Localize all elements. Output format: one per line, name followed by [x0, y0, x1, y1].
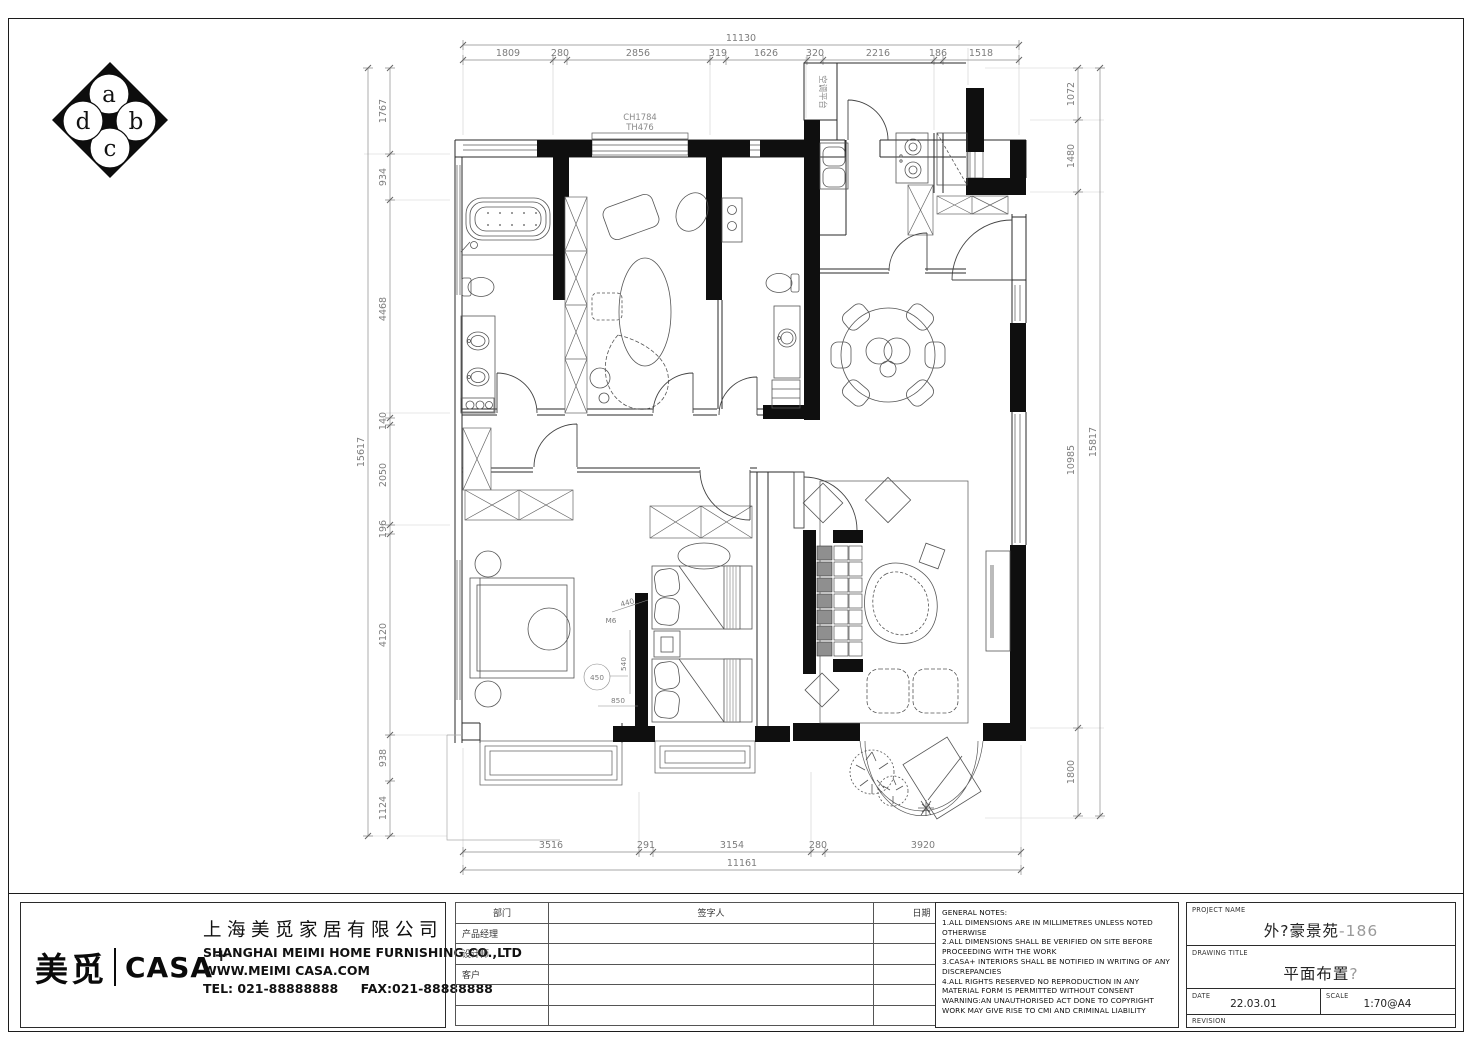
- drawing-title-row: DRAWING TITLE 平面布置?: [1187, 946, 1455, 989]
- title-block: PROJECT NAME 外?豪景苑-186 DRAWING TITLE 平面布…: [1186, 902, 1456, 1028]
- sig-cell: [456, 985, 549, 1006]
- drawing-sheet: { "logo": { "a": "a", "b": "b", "c": "c"…: [0, 0, 1472, 1040]
- sig-cell: [549, 923, 874, 944]
- date-cell: DATE 22.03.01: [1187, 989, 1321, 1014]
- drawing-title-value: 平面布置?: [1187, 962, 1455, 984]
- revision-row: REVISION: [1187, 1015, 1455, 1028]
- revision-label: REVISION: [1192, 1017, 1226, 1025]
- note-item-4: 4.ALL RIGHTS RESERVED NO REPRODUCTION IN…: [942, 977, 1172, 1016]
- drawing-title-label: DRAWING TITLE: [1192, 949, 1248, 957]
- sig-cell: [549, 944, 874, 965]
- date-scale-row: DATE 22.03.01 SCALE 1:70@A4: [1187, 989, 1455, 1015]
- company-logo: 美觅 CASA +: [35, 943, 227, 991]
- notes-title: GENERAL NOTES:: [942, 908, 1172, 918]
- note-item-1: 1.ALL DIMENSIONS ARE IN MILLIMETRES UNLE…: [942, 918, 1172, 938]
- general-notes: GENERAL NOTES: 1.ALL DIMENSIONS ARE IN M…: [935, 902, 1179, 1028]
- date-value: 22.03.01: [1187, 998, 1320, 1010]
- sig-cell: [549, 1005, 874, 1026]
- signature-table: 部门 签字人 日期 产品经理 设计师 客户: [455, 902, 930, 1026]
- note-item-2: 2.ALL DIMENSIONS SHALL BE VERIFIED ON SI…: [942, 937, 1172, 957]
- sig-row-product-manager: 产品经理: [456, 923, 549, 944]
- sig-cell: [456, 1005, 549, 1026]
- title-band-divider: [8, 893, 1464, 894]
- sig-row-designer: 设计师: [456, 944, 549, 965]
- brand-divider: [114, 948, 116, 986]
- sig-cell: [549, 985, 874, 1006]
- drawing-title-main: 平面布置: [1283, 965, 1349, 983]
- scale-cell: SCALE 1:70@A4: [1321, 989, 1454, 1014]
- project-name-main: 外?豪景苑: [1264, 922, 1339, 940]
- project-name-label: PROJECT NAME: [1192, 906, 1246, 914]
- brand-english: CASA: [125, 951, 213, 984]
- scale-value: 1:70@A4: [1321, 998, 1454, 1010]
- sheet-border: [8, 18, 1464, 1032]
- company-tel: TEL: 021-88888888: [203, 981, 338, 996]
- drawing-title-suffix: ?: [1349, 965, 1358, 983]
- sig-col-department: 部门: [456, 903, 549, 924]
- project-name-value: 外?豪景苑-186: [1187, 919, 1455, 941]
- sig-cell: [549, 964, 874, 985]
- project-name-row: PROJECT NAME 外?豪景苑-186: [1187, 903, 1455, 946]
- sig-col-signer: 签字人: [549, 903, 874, 924]
- brand-chinese: 美觅: [35, 943, 107, 991]
- sig-row-client: 客户: [456, 964, 549, 985]
- project-name-suffix: -186: [1339, 922, 1378, 940]
- company-block: 美觅 CASA + 上海美觅家居有限公司 SHANGHAI MEIMI HOME…: [20, 902, 446, 1028]
- note-item-3: 3.CASA+ INTERIORS SHALL BE NOTIFIED IN W…: [942, 957, 1172, 977]
